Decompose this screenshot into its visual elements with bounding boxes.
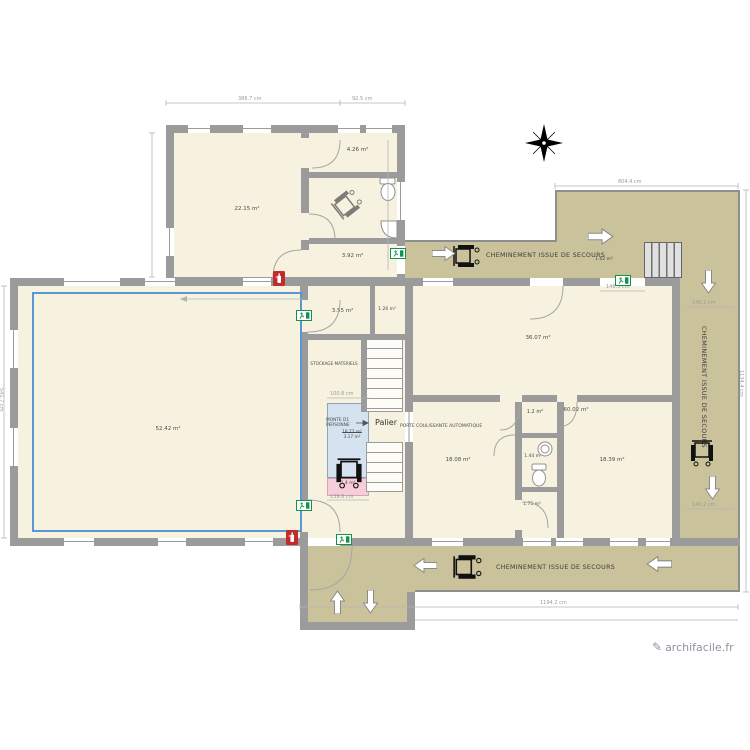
window[interactable] (10, 428, 18, 466)
wall[interactable] (166, 133, 174, 285)
corridor-outline (405, 240, 557, 242)
wall[interactable] (10, 286, 18, 538)
escape-route-label-vertical: CHEMINEMENT ISSUE DE SECOURS (700, 326, 707, 448)
window[interactable] (245, 538, 273, 546)
corridor-outline (555, 190, 740, 192)
dimension-label: 139.8 cm (330, 494, 354, 500)
wall[interactable] (309, 172, 397, 178)
corridor-outline (415, 590, 740, 592)
dimension-label: 804.4 cm (618, 179, 642, 185)
wall[interactable] (301, 133, 309, 138)
wall[interactable] (515, 487, 564, 492)
compass-icon[interactable] (525, 124, 563, 162)
window[interactable] (556, 538, 583, 546)
corridor-top-notch[interactable] (555, 190, 740, 240)
dimension-label: 1194.2 cm (540, 600, 567, 606)
room-area-label: 36.07 m² (508, 335, 568, 341)
window[interactable] (423, 278, 453, 286)
route-arrow-right[interactable] (432, 246, 456, 261)
room-area-label: 3.92 m² (325, 253, 380, 259)
dimension-label: 140.2 cm (692, 300, 716, 306)
route-arrow-down[interactable] (363, 590, 378, 614)
dimension-label: 100.8 cm (330, 391, 354, 397)
room-area-label: 18.39 m² (582, 457, 642, 463)
dimension-label: 140.2 cm (692, 502, 716, 508)
wall[interactable] (309, 238, 397, 244)
window[interactable] (243, 278, 271, 286)
window[interactable] (338, 125, 360, 133)
exit-sign[interactable] (615, 275, 631, 286)
wall[interactable] (577, 395, 672, 402)
wall[interactable] (405, 286, 413, 413)
room-area-label: 18.08 m² (428, 457, 488, 463)
wall[interactable] (300, 546, 308, 630)
wall[interactable] (515, 530, 522, 538)
wall[interactable] (672, 286, 680, 538)
room-area-label: 1.4 m² (332, 481, 364, 486)
corridor-vestibule[interactable] (308, 546, 407, 622)
window[interactable] (243, 125, 271, 133)
window[interactable] (166, 228, 174, 256)
watermark: ✎ archifacile.fr (652, 640, 734, 654)
route-arrow-left[interactable] (413, 558, 437, 573)
wall[interactable] (301, 240, 309, 250)
route-arrow-down[interactable] (705, 476, 720, 500)
dimension-label: 541.7 cm (0, 388, 4, 412)
selected-room-outline[interactable] (32, 292, 302, 532)
corridor-outline (555, 190, 557, 240)
window[interactable] (366, 125, 392, 133)
route-arrow-left[interactable] (646, 556, 672, 572)
route-arrow-down[interactable] (701, 270, 716, 294)
room-area-label: 1.75 m² (517, 502, 547, 507)
wall[interactable] (301, 168, 309, 213)
window[interactable] (64, 278, 120, 286)
wall[interactable] (522, 395, 557, 402)
wall[interactable] (405, 442, 413, 538)
escape-route-label: CHEMINEMENT ISSUE DE SECOURS (496, 564, 615, 571)
floorplan-canvas[interactable]: 22.15 m² 4.26 m² 3.92 m² 3.55 m² 1.26 m²… (0, 0, 750, 750)
stairs-exterior[interactable] (644, 242, 682, 278)
dimension-label: 92.5 cm (352, 96, 372, 102)
wall[interactable] (407, 592, 415, 630)
wheelchair-icon[interactable] (690, 439, 714, 467)
wall[interactable] (361, 340, 366, 412)
exit-sign[interactable] (336, 534, 352, 545)
watermark-text: archifacile.fr (665, 641, 734, 654)
stairs-lower-flight[interactable] (366, 442, 403, 492)
pencil-icon: ✎ (652, 640, 662, 654)
sliding-door-label: PORTE COULISSANTE AUTOMATIQUE (400, 424, 512, 429)
window[interactable] (188, 125, 210, 133)
route-arrow-up[interactable] (330, 590, 345, 614)
fire-extinguisher-icon[interactable] (273, 271, 285, 286)
window[interactable] (646, 538, 670, 546)
stairs-upper-flight[interactable] (366, 338, 403, 412)
dimension-label: 386.7 cm (238, 96, 262, 102)
exit-sign[interactable] (296, 500, 312, 511)
storage-label: STOCKAGE MATERIELS (306, 362, 362, 367)
room-area-label: 1.44 m² (518, 454, 548, 459)
escape-route-label: CHEMINEMENT ISSUE DE SECOURS (486, 252, 605, 259)
wall[interactable] (300, 622, 415, 630)
fire-extinguisher-icon[interactable] (286, 530, 298, 545)
wall[interactable] (300, 532, 308, 538)
wall[interactable] (308, 334, 405, 340)
wall[interactable] (557, 402, 564, 538)
exit-sign[interactable] (296, 310, 312, 321)
exit-sign[interactable] (390, 248, 406, 259)
dimension-label: 1134.4 cm (738, 370, 744, 397)
window[interactable] (145, 278, 175, 286)
window[interactable] (10, 330, 18, 368)
room-area-label: 22.15 m² (212, 206, 282, 212)
wheelchair-icon[interactable] (452, 244, 480, 268)
window[interactable] (64, 538, 94, 546)
lift-label: MONTE D1PERSONNE (326, 419, 360, 429)
room-area-label: 3.55 m² (315, 308, 370, 314)
window[interactable] (158, 538, 186, 546)
wall[interactable] (413, 395, 500, 402)
room-area-label: 1.26 m² (372, 307, 402, 312)
window[interactable] (523, 538, 551, 546)
wheelchair-icon[interactable] (452, 554, 482, 580)
room-area-label: 60.02 m² (552, 407, 600, 413)
door-opening[interactable] (530, 278, 563, 286)
wall[interactable] (515, 433, 564, 438)
room-area-label: 4.26 m² (330, 147, 385, 153)
palier-label: Palier (368, 418, 404, 427)
room-area-label: 1.2 m² (520, 410, 550, 416)
lift-area-label: 18.72 m²3.17 m² (336, 431, 368, 441)
route-arrow-right[interactable] (588, 228, 614, 245)
wall[interactable] (515, 402, 522, 500)
window[interactable] (432, 538, 463, 546)
window[interactable] (397, 182, 405, 220)
window[interactable] (610, 538, 638, 546)
